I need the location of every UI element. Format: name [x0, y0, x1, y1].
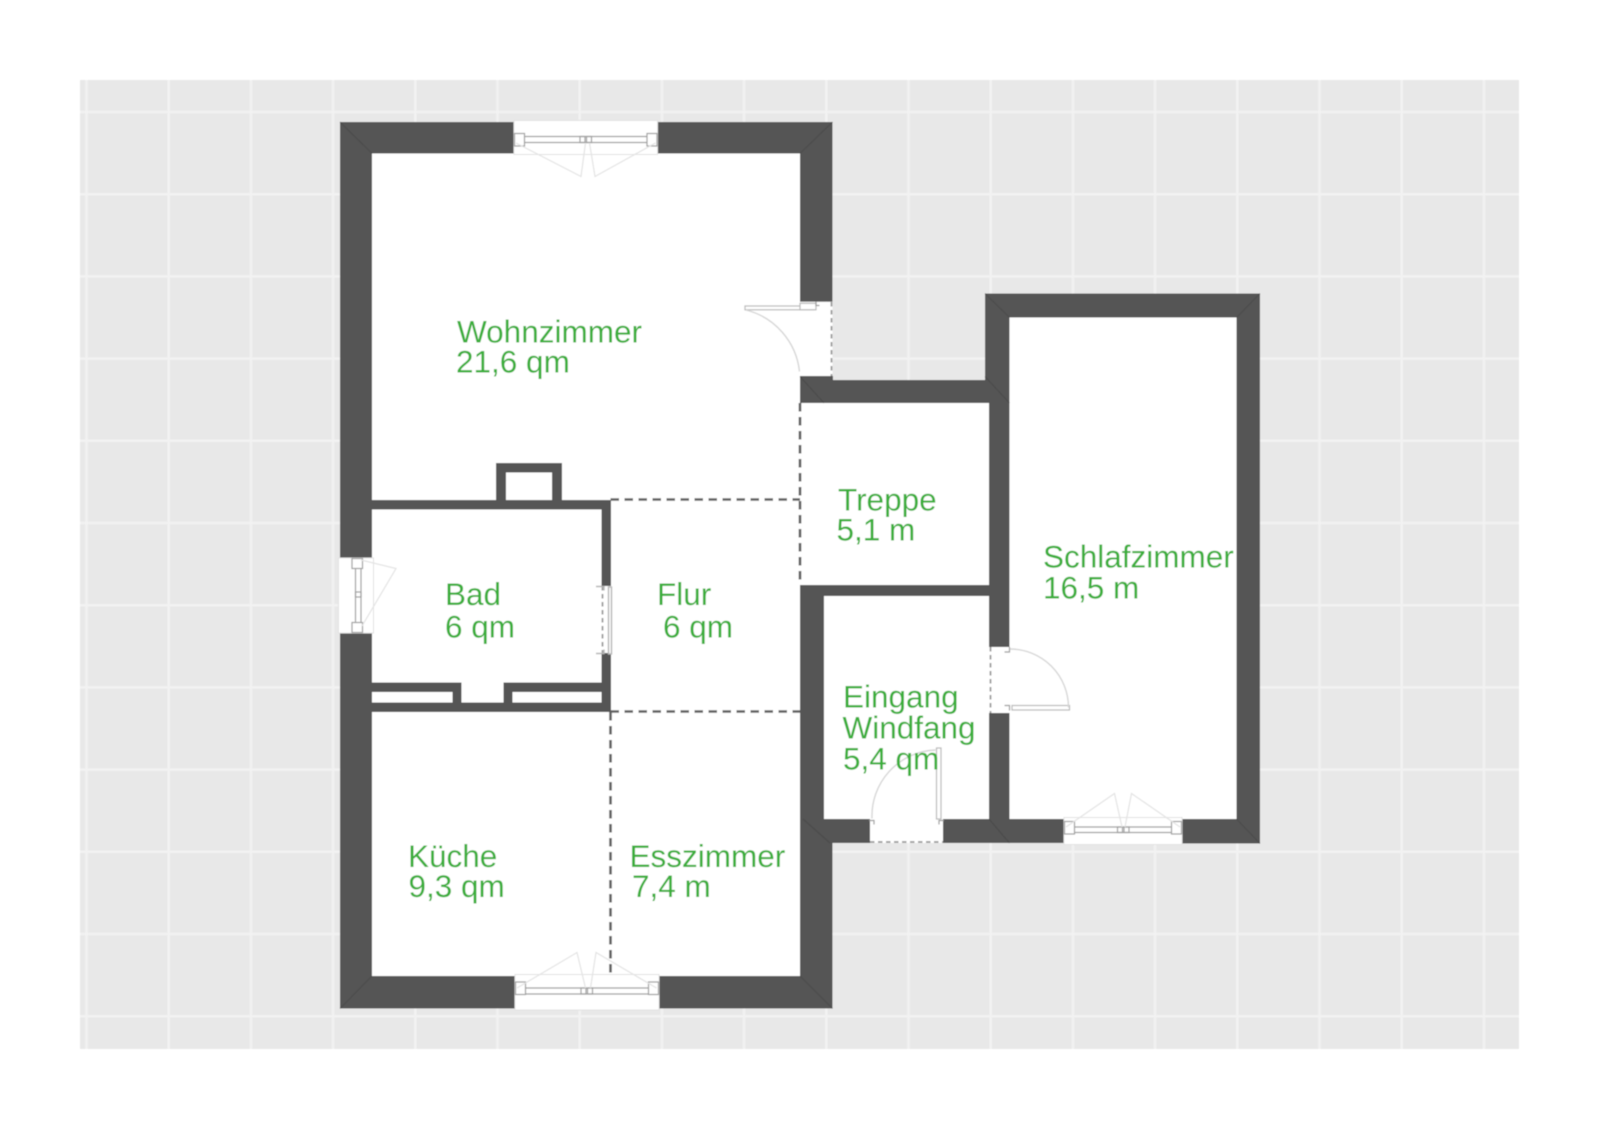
svg-text:Flur: Flur	[657, 576, 711, 612]
svg-text:5,1 m: 5,1 m	[837, 512, 916, 548]
svg-text:6 qm: 6 qm	[663, 609, 733, 645]
svg-text:21,6 qm: 21,6 qm	[456, 344, 570, 380]
svg-text:6 qm: 6 qm	[445, 609, 515, 645]
svg-text:7,4 m: 7,4 m	[632, 868, 711, 904]
svg-text:9,3 qm: 9,3 qm	[409, 868, 505, 904]
svg-text:16,5 m: 16,5 m	[1043, 570, 1139, 606]
svg-text:5,4 qm: 5,4 qm	[843, 741, 939, 777]
svg-text:Bad: Bad	[445, 576, 501, 612]
